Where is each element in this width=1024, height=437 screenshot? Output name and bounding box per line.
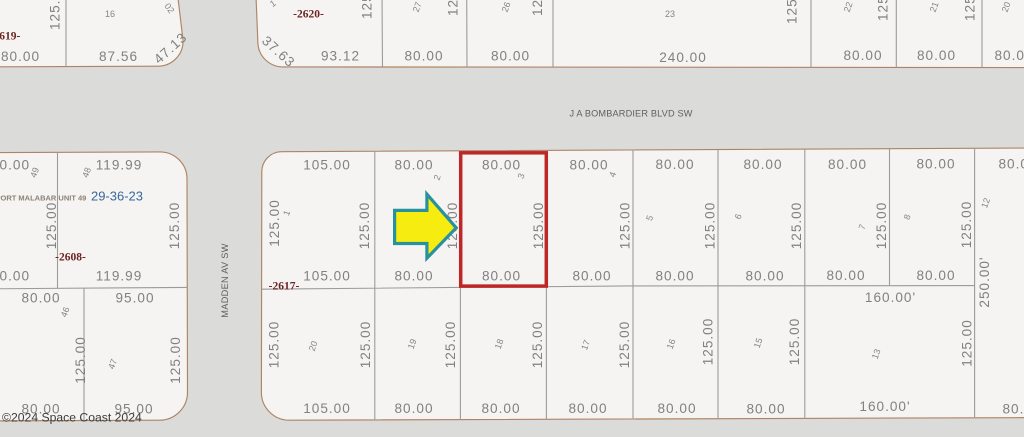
svg-text:-2608-: -2608-	[55, 252, 86, 264]
svg-text:125.00: 125.00	[963, 0, 978, 21]
svg-text:125.00: 125.00	[446, 0, 461, 16]
svg-text:125.00: 125.00	[73, 336, 88, 384]
svg-text:80.00: 80.00	[0, 158, 30, 173]
svg-text:250.00': 250.00'	[977, 256, 992, 307]
svg-text:125.00: 125.00	[530, 321, 545, 369]
svg-text:29-36-23: 29-36-23	[91, 189, 143, 204]
svg-text:119.99: 119.99	[96, 158, 143, 173]
svg-text:125.0: 125.0	[48, 0, 63, 30]
svg-text:125.00: 125.00	[357, 202, 372, 250]
svg-text:95.00: 95.00	[115, 291, 154, 306]
svg-text:80.00: 80.00	[998, 157, 1024, 172]
svg-text:105.00: 105.00	[303, 158, 351, 173]
svg-text:80.00: 80.00	[655, 157, 694, 172]
svg-text:80.00: 80.00	[21, 291, 60, 306]
svg-text:125.00: 125.00	[874, 202, 889, 250]
svg-text:80.00: 80.00	[568, 401, 607, 416]
svg-text:125.00: 125.00	[267, 321, 282, 369]
svg-text:J A BOMBARDIER BLVD SW: J A BOMBARDIER BLVD SW	[569, 109, 692, 119]
svg-text:80.00: 80.00	[843, 48, 882, 63]
svg-text:87.56: 87.56	[99, 49, 138, 64]
svg-text:125.00: 125.00	[876, 0, 891, 21]
svg-text:80.00: 80.00	[572, 269, 611, 284]
svg-text:125.00: 125.00	[787, 318, 802, 366]
svg-text:16: 16	[105, 9, 115, 19]
svg-text:80.00: 80.00	[917, 48, 956, 63]
svg-text:80.00: 80.00	[394, 401, 433, 416]
svg-text:-2617-: -2617-	[269, 281, 300, 293]
svg-text:80.00: 80.00	[481, 401, 520, 416]
svg-text:23: 23	[665, 9, 675, 19]
svg-text:125.00: 125.00	[443, 321, 458, 369]
svg-text:125.00: 125.00	[267, 199, 282, 247]
svg-text:125.00: 125.00	[530, 0, 545, 16]
svg-text:©2024 Space Coast 2024: ©2024 Space Coast 2024	[2, 411, 142, 425]
svg-text:80.00: 80.00	[994, 48, 1024, 63]
svg-text:80.00: 80.00	[743, 157, 782, 172]
svg-text:93.12: 93.12	[321, 49, 360, 64]
svg-text:125.00: 125.00	[167, 202, 182, 250]
svg-text:80.00: 80.00	[745, 268, 784, 283]
svg-text:105.00: 105.00	[303, 401, 351, 416]
svg-text:80.00: 80.00	[916, 268, 955, 283]
svg-text:125.00: 125.00	[360, 0, 375, 19]
svg-text:125.00: 125.00	[701, 318, 716, 366]
svg-text:80.00: 80.00	[482, 269, 521, 284]
svg-text:125.00: 125.00	[358, 321, 373, 369]
svg-text:125.00: 125.00	[618, 202, 633, 250]
svg-text:80.00: 80.00	[394, 269, 433, 284]
svg-text:80.00: 80.00	[826, 268, 865, 283]
svg-text:160.00': 160.00'	[859, 399, 910, 414]
svg-text:125.00: 125.00	[960, 319, 975, 367]
svg-text:-2620-: -2620-	[293, 9, 324, 21]
svg-text:80.00: 80.00	[394, 158, 433, 173]
svg-text:125.00: 125.00	[168, 336, 183, 384]
svg-text:80.00: 80.00	[1, 49, 40, 64]
svg-text:125.00: 125.00	[531, 202, 546, 250]
svg-text:80.00: 80.00	[828, 157, 867, 172]
svg-text:105.00: 105.00	[303, 269, 351, 284]
svg-text:240.00: 240.00	[659, 50, 707, 65]
svg-text:125.00: 125.00	[617, 321, 632, 369]
svg-text:MADDEN AV SW: MADDEN AV SW	[220, 243, 230, 317]
svg-text:125.00: 125.00	[789, 202, 804, 250]
svg-text:80.00: 80.00	[569, 158, 608, 173]
svg-text:80.00: 80.00	[491, 49, 530, 64]
svg-text:-2619-: -2619-	[0, 31, 20, 43]
svg-text:125.00: 125.00	[959, 201, 974, 249]
svg-text:80.00: 80.00	[746, 401, 785, 416]
svg-text:80.00: 80.00	[657, 401, 696, 416]
svg-text:PORT MALABAR UNIT 49: PORT MALABAR UNIT 49	[0, 194, 86, 203]
svg-text:125.00: 125.00	[785, 0, 800, 24]
svg-text:80.00: 80.00	[916, 157, 955, 172]
svg-text:80.00: 80.00	[404, 49, 443, 64]
svg-text:80.00: 80.00	[0, 269, 30, 284]
svg-text:80.00: 80.00	[482, 158, 521, 173]
svg-text:125.00: 125.00	[44, 202, 59, 250]
svg-text:125.00: 125.00	[703, 202, 718, 250]
svg-text:160.00': 160.00'	[865, 290, 916, 305]
svg-text:119.99: 119.99	[96, 269, 143, 284]
svg-text:80.00: 80.00	[655, 268, 694, 283]
svg-text:80.00: 80.00	[1002, 402, 1024, 417]
